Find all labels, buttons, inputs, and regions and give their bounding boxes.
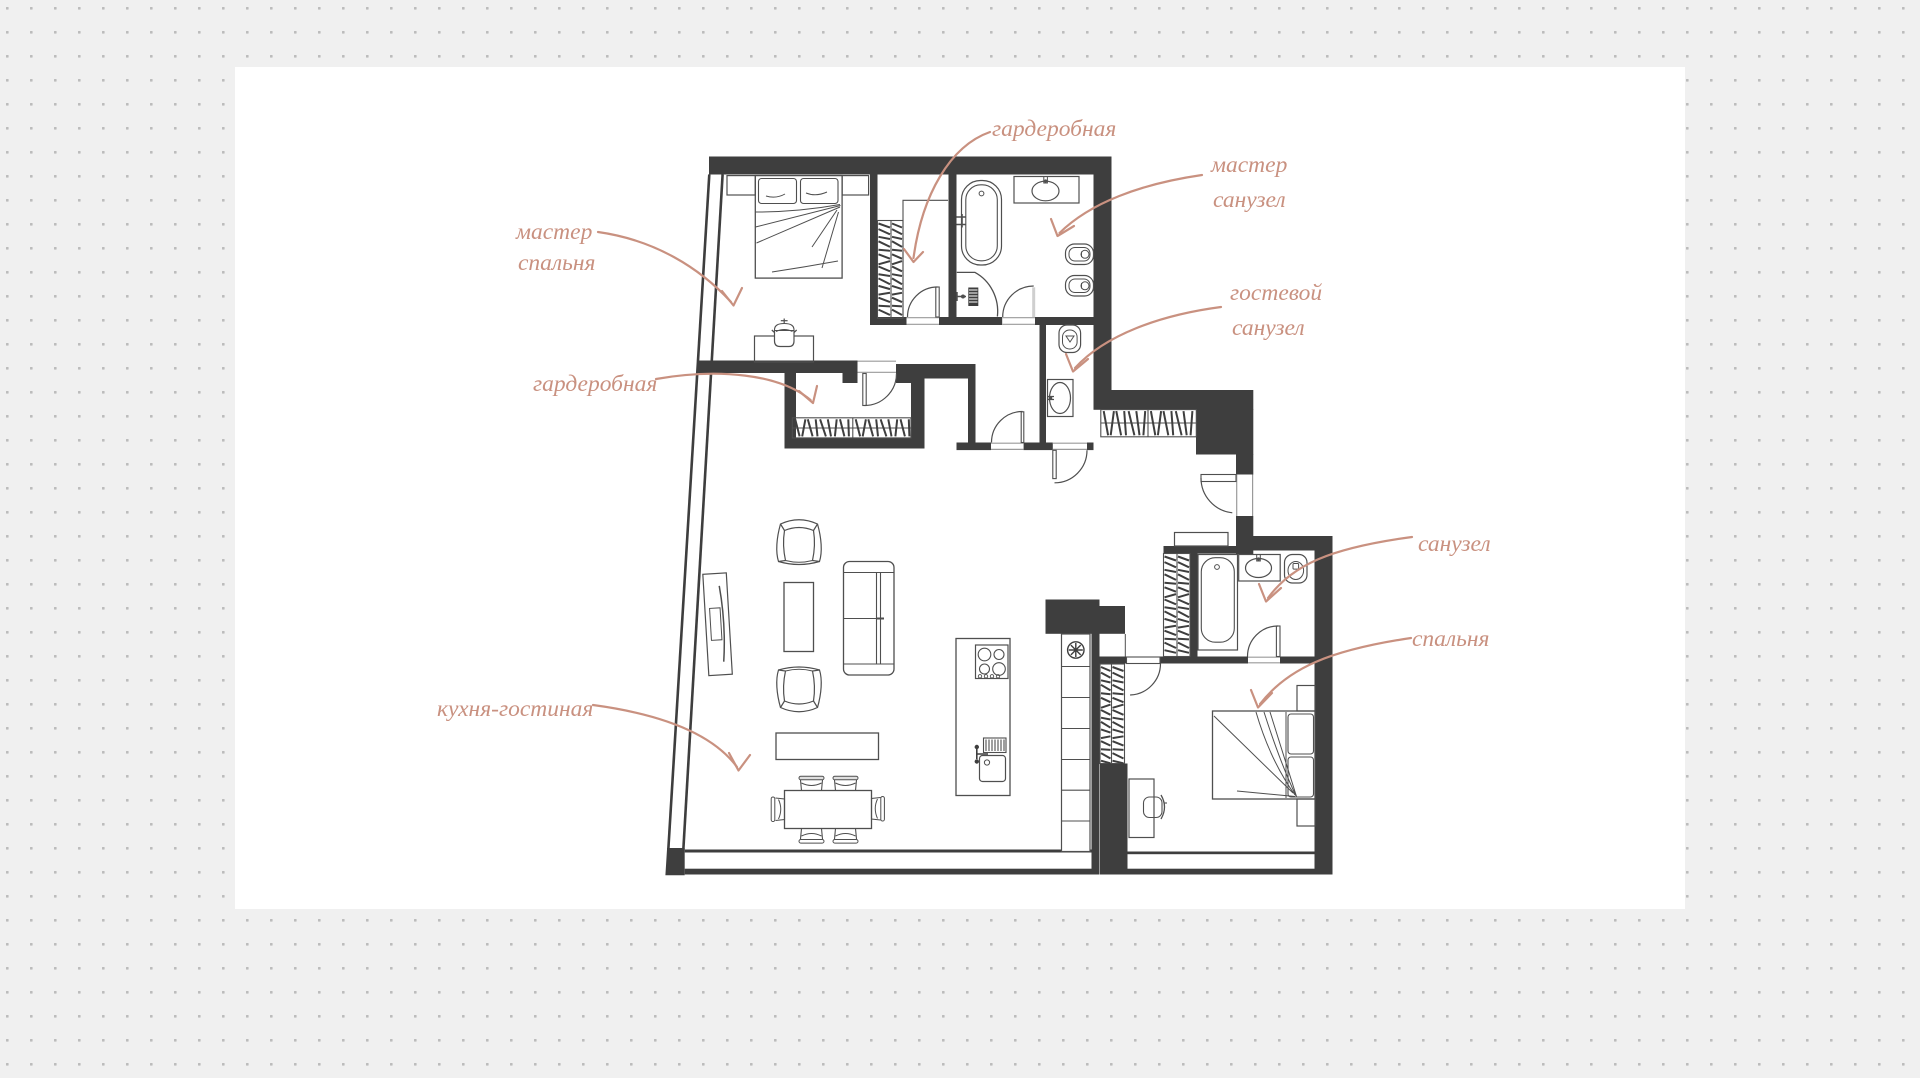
svg-text:мастер: мастер: [515, 219, 593, 245]
svg-text:мастер: мастер: [1210, 152, 1288, 178]
svg-text:санузел: санузел: [1232, 315, 1305, 341]
svg-text:спальня: спальня: [518, 250, 595, 276]
svg-text:гостевой: гостевой: [1230, 280, 1322, 306]
svg-text:гардеробная: гардеробная: [533, 371, 657, 397]
svg-text:кухня-гостиная: кухня-гостиная: [437, 696, 593, 722]
svg-text:санузел: санузел: [1418, 531, 1491, 557]
svg-text:санузел: санузел: [1213, 187, 1286, 213]
svg-text:гардеробная: гардеробная: [992, 116, 1116, 142]
svg-text:спальня: спальня: [1412, 626, 1489, 652]
